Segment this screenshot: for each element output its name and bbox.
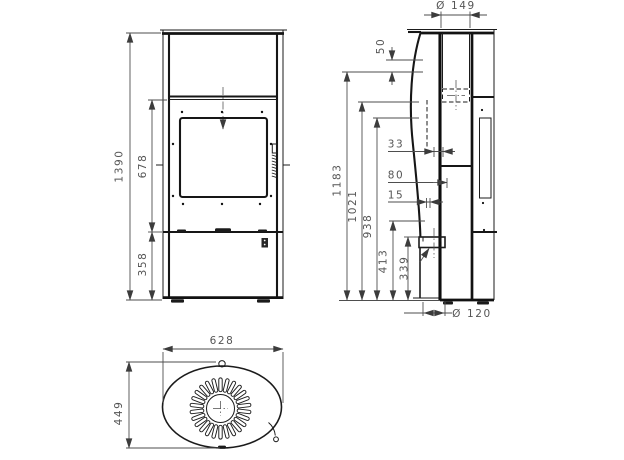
drawing-svg: 1390 678 358 [0, 0, 624, 460]
stove-door-glass [180, 118, 267, 197]
rating-plate [262, 238, 269, 248]
dim-offset-80-label: 80 [388, 170, 405, 182]
rear-heat-shield [480, 109, 492, 231]
flue-outlet-hidden [443, 80, 470, 110]
stove-technical-drawing: 1390 678 358 [0, 0, 624, 460]
dim-flue-top-offset-label: 50 [375, 38, 387, 55]
side-dimensions: Ø 149 50 1183 1021 938 413 339 [332, 0, 492, 320]
door-screws [172, 111, 272, 205]
dim-front-overall-height-label: 1390 [114, 149, 126, 182]
center-mark [213, 401, 228, 416]
top-dimensions: 628 449 [113, 335, 283, 448]
dim-top-width-label: 628 [210, 335, 235, 347]
front-view-outline [156, 30, 290, 303]
dim-offset-15-label: 15 [388, 190, 405, 202]
dim-flue-diameter-label: Ø 149 [436, 0, 476, 12]
dim-offset-33-label: 33 [388, 139, 405, 151]
side-view: Ø 149 50 1183 1021 938 413 339 [332, 0, 498, 320]
dim-front-middle-height-label: 678 [137, 154, 149, 179]
dim-air-inlet-diameter-label: Ø 120 [452, 308, 492, 320]
top-view: 628 449 [113, 335, 283, 449]
damper-knob [218, 361, 225, 367]
dim-height-413-label: 413 [378, 249, 390, 274]
dim-height-339-label: 339 [399, 256, 411, 281]
dim-height-1183-label: 1183 [332, 163, 344, 196]
dim-front-base-height-label: 358 [137, 252, 149, 277]
dim-top-depth-label: 449 [113, 401, 125, 426]
front-view: 1390 678 358 [114, 30, 291, 303]
dim-height-938-label: 938 [362, 214, 374, 239]
front-dimensions: 1390 678 358 [114, 33, 168, 300]
dim-height-1021-label: 1021 [347, 189, 359, 222]
side-view-outline [407, 30, 497, 305]
